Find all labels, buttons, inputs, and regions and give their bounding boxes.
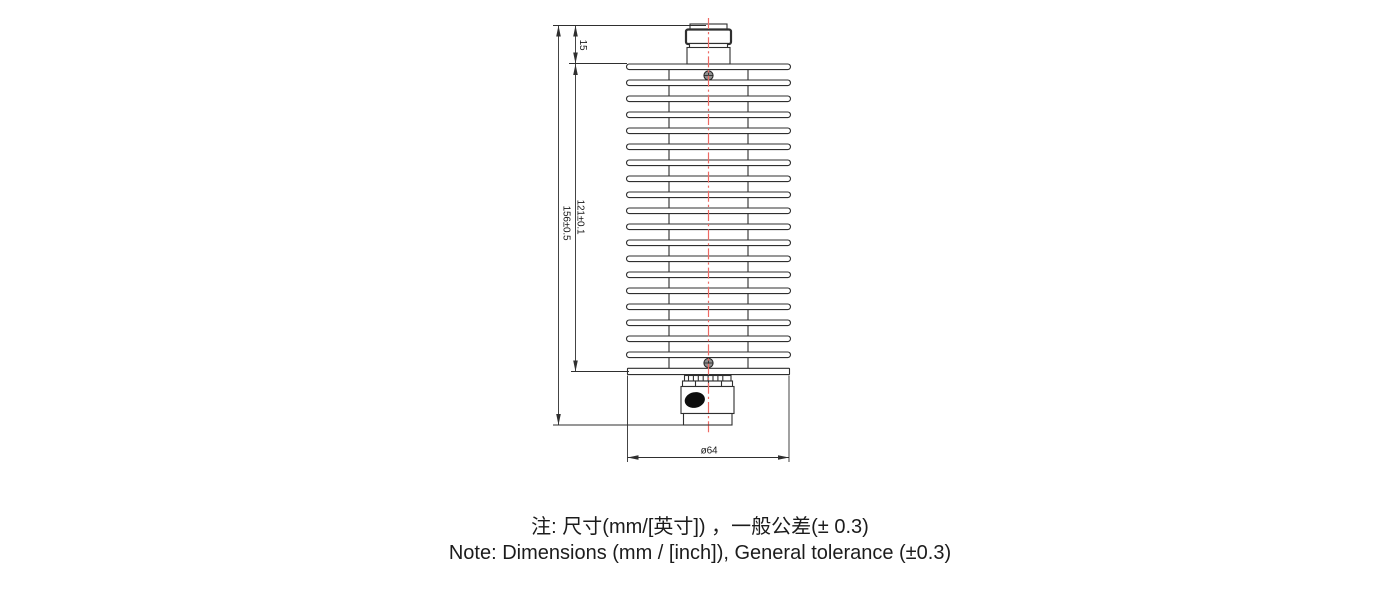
connector-bottom: [684, 414, 733, 426]
notes-block: 注: 尺寸(mm/[英寸]) ，一般公差(± 0.3) Note: Dimens…: [0, 514, 1400, 566]
dim-label-connector-height: 15: [577, 40, 588, 51]
bottom-connector: [681, 376, 734, 426]
dim-label-heatsink-length: 121±0.1: [575, 200, 586, 235]
note-en: Note: Dimensions (mm / [inch]), General …: [0, 540, 1400, 566]
dim-label-diameter: ø64: [701, 446, 718, 457]
dim-label-overall-length: 156±0.5: [561, 206, 572, 241]
technical-drawing: 15 121±0.1 156±0.5 ø64: [0, 0, 1400, 600]
note-cn: 注: 尺寸(mm/[英寸]) ，一般公差(± 0.3): [0, 514, 1400, 540]
drawing-page: 15 121±0.1 156±0.5 ø64 注: 尺寸(mm/[英寸]) ，一…: [0, 0, 1400, 600]
hex-section: [683, 381, 733, 387]
